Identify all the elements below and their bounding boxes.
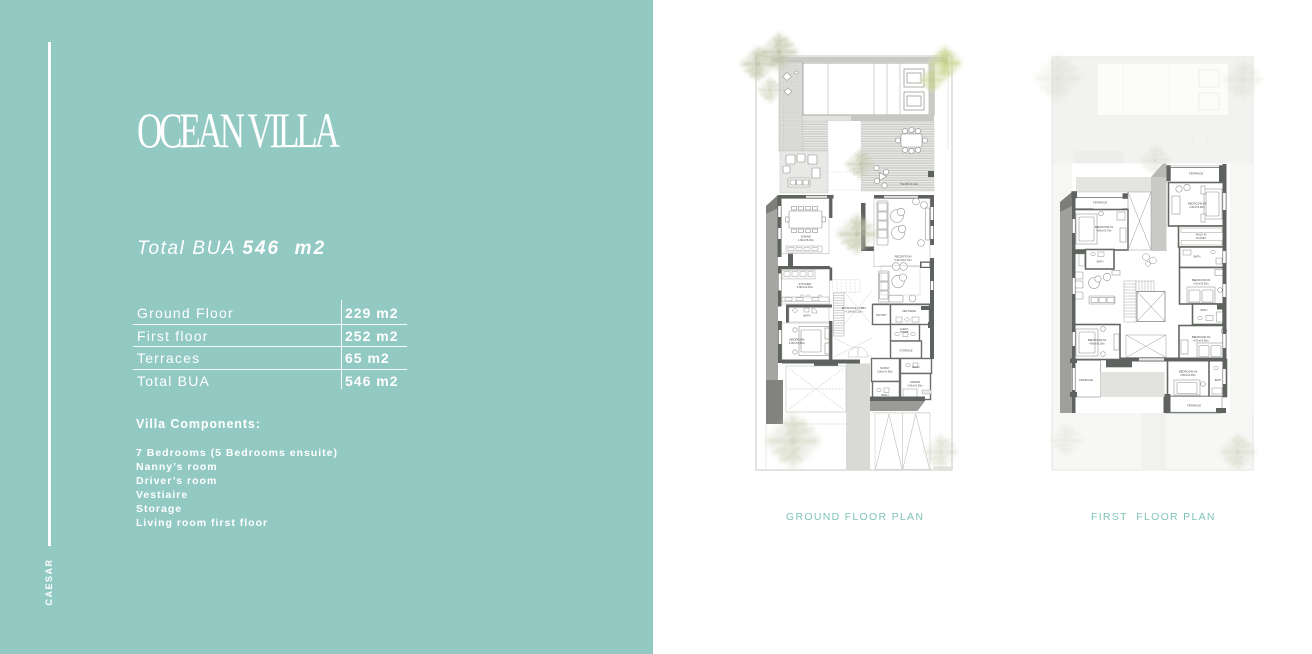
svg-text:4.82mX6.00m: 4.82mX6.00m (798, 238, 814, 242)
svg-text:BATH: BATH (882, 393, 889, 397)
svg-text:DRIVER: DRIVER (910, 380, 920, 384)
svg-text:BEDROOM 02: BEDROOM 02 (1088, 338, 1107, 342)
svg-text:TOILET: TOILET (900, 331, 909, 334)
svg-text:DINING: DINING (801, 235, 812, 239)
svg-text:2.85mX1.95m: 2.85mX1.95m (877, 370, 893, 373)
svg-text:TERRACE: TERRACE (1079, 378, 1093, 382)
svg-text:PANTRY: PANTRY (876, 313, 887, 317)
svg-text:STORAGE: STORAGE (899, 349, 912, 353)
svg-text:WALK-IN: WALK-IN (1196, 233, 1207, 237)
svg-text:3.40mX4.95m: 3.40mX4.95m (1189, 206, 1205, 209)
svg-text:BEDROOM 04: BEDROOM 04 (1192, 335, 1211, 339)
svg-text:4.20mX3.50m: 4.20mX3.50m (1193, 282, 1209, 285)
svg-text:CLOSET: CLOSET (1196, 236, 1207, 240)
svg-text:KITCHEN: KITCHEN (799, 282, 812, 286)
svg-text:BATH: BATH (1215, 379, 1222, 382)
svg-text:BEDROOM 06: BEDROOM 06 (1179, 370, 1198, 374)
svg-text:BEDROOM 05: BEDROOM 05 (1188, 202, 1207, 206)
svg-text:BEDROOM 01: BEDROOM 01 (1095, 225, 1114, 229)
svg-text:4.80mX3.50m: 4.80mX3.50m (797, 285, 813, 289)
svg-text:4.80mX3.30m: 4.80mX3.30m (1089, 342, 1105, 345)
svg-text:2.45mX1.90m: 2.45mX1.90m (907, 384, 923, 387)
svg-text:3.80mX3.35m: 3.80mX3.35m (1180, 374, 1196, 377)
svg-text:4.80mX3.70m: 4.80mX3.70m (1096, 229, 1112, 232)
svg-text:4.20mX3.30m: 4.20mX3.30m (1193, 339, 1209, 342)
svg-text:ENTRANCE LOBBY: ENTRANCE LOBBY (842, 306, 867, 310)
svg-text:BATH: BATH (1194, 255, 1201, 259)
svg-text:RECEPTION: RECEPTION (895, 255, 912, 259)
svg-text:BATH: BATH (1097, 260, 1104, 264)
svg-text:VESTIAIRE: VESTIAIRE (902, 309, 916, 313)
svg-text:NANNY: NANNY (880, 366, 890, 370)
svg-text:BATH: BATH (1201, 308, 1208, 312)
svg-text:TERRACE: TERRACE (1093, 201, 1107, 205)
svg-text:BATH: BATH (913, 365, 920, 369)
svg-text:TERRACE: TERRACE (1187, 404, 1201, 408)
svg-text:TERRACE: TERRACE (900, 182, 918, 186)
svg-text:BEDROOM: BEDROOM (790, 338, 806, 342)
svg-text:BATH: BATH (804, 314, 811, 318)
svg-text:4.80mX3.80m: 4.80mX3.80m (789, 341, 805, 345)
svg-text:5.40mX10.70m: 5.40mX10.70m (894, 258, 912, 262)
svg-text:TERRACE: TERRACE (1189, 172, 1203, 176)
svg-text:BEDROOM 03: BEDROOM 03 (1192, 278, 1211, 282)
